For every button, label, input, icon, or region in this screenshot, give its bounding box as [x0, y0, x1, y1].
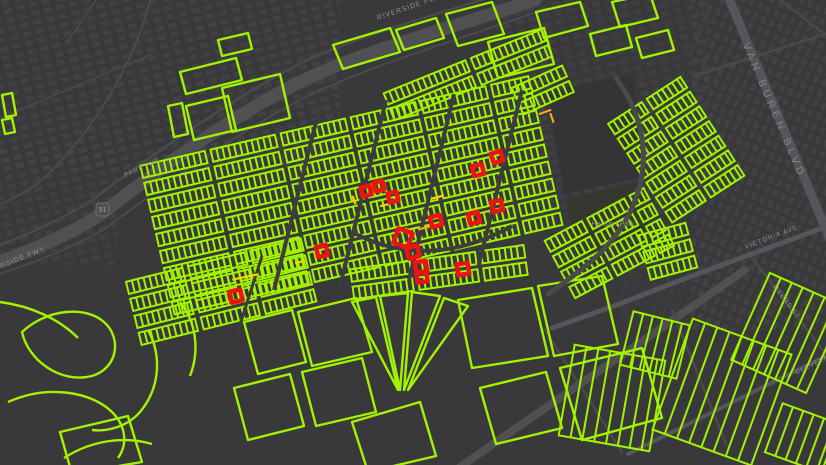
- highway-shield-label: 91: [99, 207, 107, 214]
- label-hansen-park: Hansen Park: [591, 219, 635, 228]
- highway-shield-91: 91: [96, 203, 109, 216]
- gis-map[interactable]: RIVERSIDE FWYRIVERSIDE FWYPARK AVEVAN BU…: [0, 0, 826, 465]
- landuse-patch: [548, 74, 648, 194]
- map-canvas[interactable]: RIVERSIDE FWYRIVERSIDE FWYPARK AVEVAN BU…: [0, 0, 826, 465]
